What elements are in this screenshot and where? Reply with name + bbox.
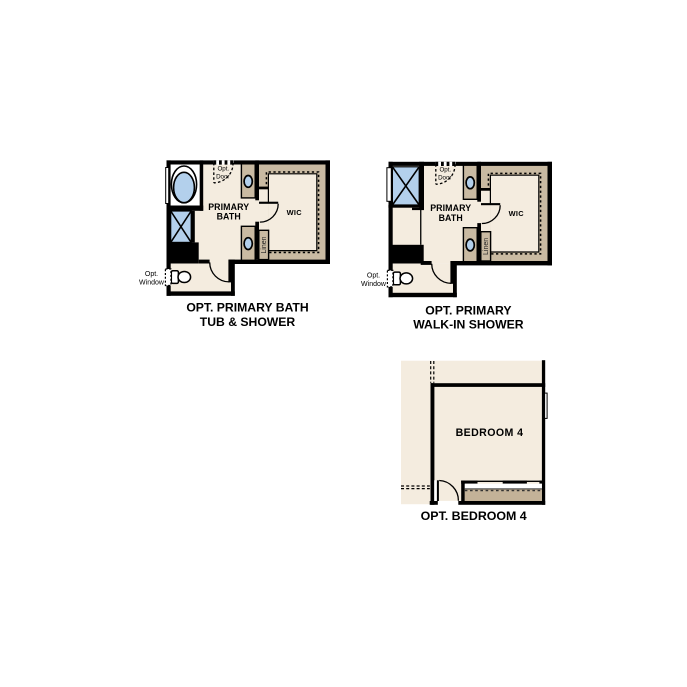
svg-text:Opt.: Opt. [217, 165, 229, 172]
svg-text:Door: Door [438, 175, 451, 182]
svg-text:PRIMARY: PRIMARY [208, 202, 249, 212]
svg-text:WALK-IN SHOWER: WALK-IN SHOWER [413, 317, 524, 331]
svg-text:Opt.: Opt. [439, 167, 451, 174]
svg-text:Opt.: Opt. [145, 271, 158, 278]
svg-text:Door: Door [216, 173, 229, 180]
svg-text:OPT. PRIMARY BATH: OPT. PRIMARY BATH [186, 301, 308, 315]
svg-text:BATH: BATH [439, 213, 463, 223]
svg-text:Window: Window [139, 280, 165, 287]
svg-text:PRIMARY: PRIMARY [430, 203, 471, 213]
svg-text:WIC: WIC [509, 209, 525, 218]
svg-text:OPT. PRIMARY: OPT. PRIMARY [425, 303, 511, 317]
svg-text:Opt.: Opt. [367, 272, 380, 279]
svg-text:Linen: Linen [483, 238, 490, 255]
svg-text:TUB & SHOWER: TUB & SHOWER [200, 315, 296, 329]
svg-text:OPT. BEDROOM 4: OPT. BEDROOM 4 [421, 509, 527, 523]
svg-text:Window: Window [361, 281, 387, 288]
svg-text:BATH: BATH [217, 211, 241, 221]
svg-text:WIC: WIC [287, 208, 303, 217]
svg-text:BEDROOM 4: BEDROOM 4 [456, 427, 524, 439]
svg-text:Linen: Linen [261, 236, 268, 253]
